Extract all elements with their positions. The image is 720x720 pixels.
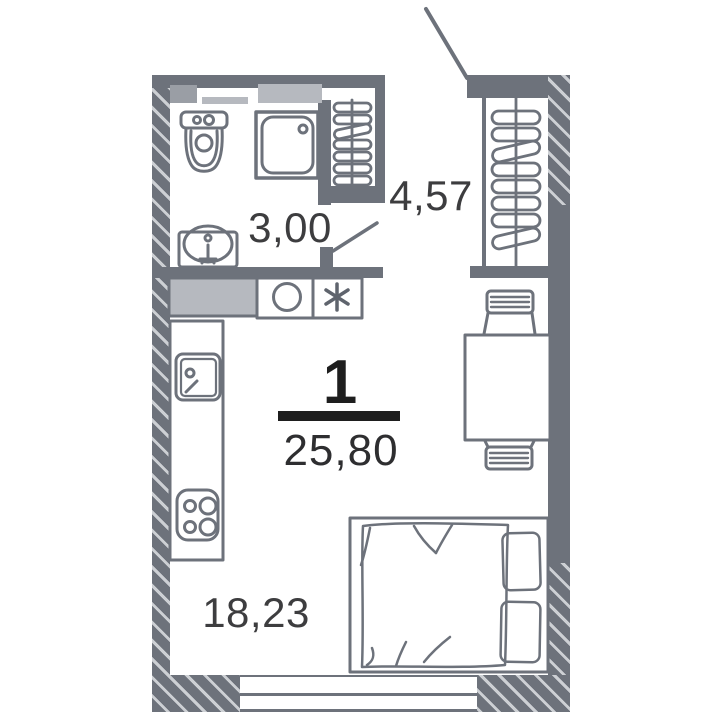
towel-radiator-icon — [334, 100, 372, 186]
chair-top-icon — [484, 291, 535, 334]
rooms-count-label: 1 — [323, 347, 357, 418]
bathroom-door-swing — [333, 223, 377, 251]
fixtures-layer — [0, 0, 720, 720]
hallway-area-label: 4,57 — [389, 172, 473, 220]
boiler-asterisk-icon — [313, 278, 362, 318]
washing-machine-icon — [257, 278, 313, 318]
living-room-area-label: 18,23 — [202, 589, 310, 637]
shower-icon — [256, 112, 318, 178]
total-area-label: 25,80 — [283, 426, 398, 476]
chair-bottom-icon — [485, 441, 534, 469]
washbasin-icon — [179, 226, 237, 267]
double-bed-icon — [350, 518, 548, 672]
wardrobe-hangers-icon — [491, 98, 541, 266]
floor-plan: 3,00 4,57 18,23 1 25,80 — [0, 0, 720, 720]
entrance-door-swing — [426, 9, 467, 78]
toilet-icon — [181, 112, 227, 171]
bathroom-area-label: 3,00 — [248, 204, 332, 252]
fraction-divider — [278, 411, 400, 421]
kitchen-countertop — [169, 278, 257, 316]
dining-table-icon — [465, 335, 550, 440]
